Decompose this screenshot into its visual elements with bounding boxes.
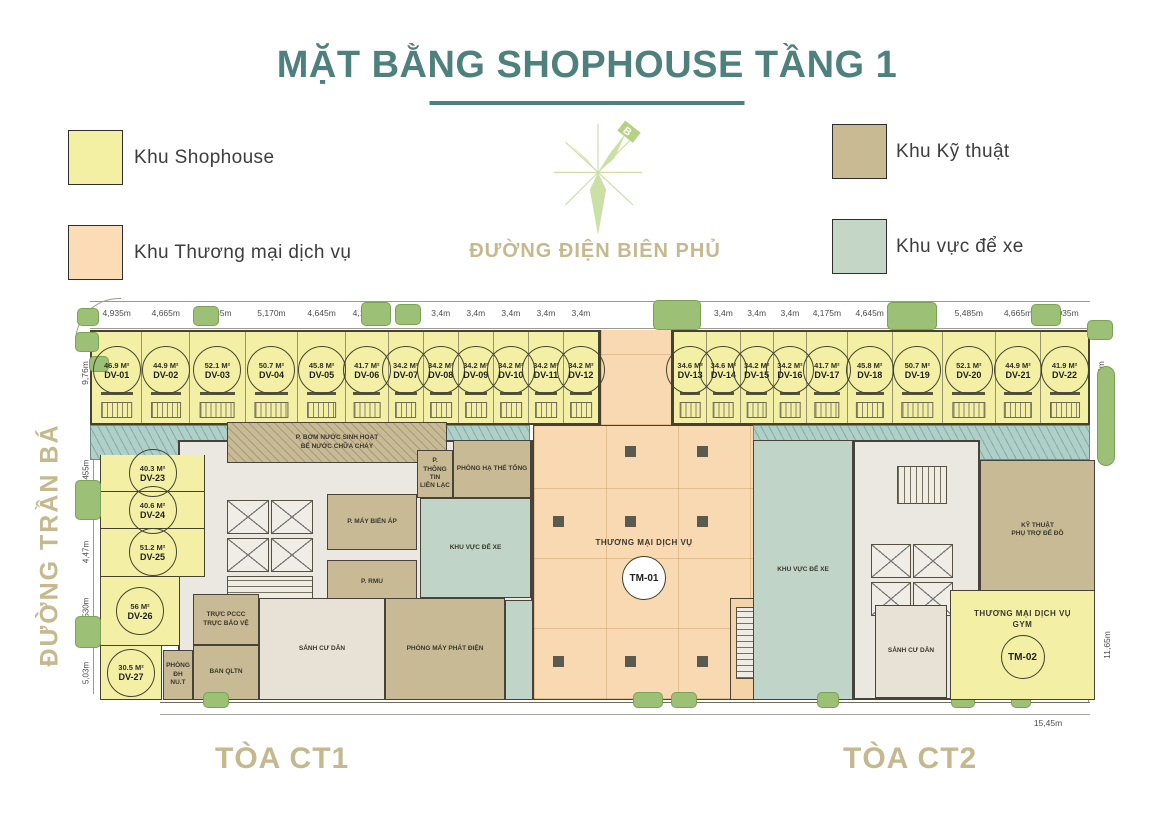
unit-badge: 51.2 M² DV-25 — [129, 528, 177, 576]
unit-dimension: 4,645m — [307, 308, 335, 318]
title-underline — [430, 101, 745, 105]
floor-plan: THƯƠNG MẠI DỊCH VỤ TM-01 4,935m 46.9 M² … — [75, 298, 1111, 714]
shopfront-fixture — [395, 402, 417, 418]
shophouse-unit: 4,175m 41.7 M² DV-06 — [345, 332, 388, 423]
unit-id: DV-25 — [140, 552, 165, 562]
legend-swatch-commercial — [68, 225, 123, 280]
unit-id: DV-11 — [534, 370, 559, 380]
tree — [395, 304, 421, 325]
shopfront-fixture — [780, 402, 801, 418]
shophouse-unit: 5,485m 52.1 M² DV-20 — [942, 332, 995, 423]
unit-id: DV-10 — [498, 370, 523, 380]
shophouse-unit: 3,4m 34.2 M² DV-12 — [563, 332, 598, 423]
elevator — [871, 544, 911, 578]
tower-label-ct2: TÒA CT2 — [843, 742, 977, 776]
shophouse-unit: 4,935m 41.9 M² DV-22 — [1040, 332, 1088, 423]
tree — [671, 692, 697, 708]
zone-tm01-entry — [600, 330, 672, 426]
unit-badge: 52.1 M² DV-03 — [193, 346, 241, 394]
unit-dimension: 3,4m — [571, 308, 590, 318]
room-ky-thuat: KỸ THUẬT PHỤ TRỢ ĐỂ ĐỒ — [980, 460, 1095, 600]
tree — [633, 692, 663, 708]
zone-tm01: THƯƠNG MẠI DỊCH VỤ TM-01 — [533, 425, 755, 700]
shopfront-fixture — [465, 402, 487, 418]
elevator — [913, 544, 953, 578]
unit-dimension: 5,03m — [82, 662, 91, 684]
unit-area: 34.2 M² — [463, 361, 488, 370]
unit-dimension: 4,645m — [856, 308, 884, 318]
unit-badge: 41.9 M² DV-22 — [1041, 346, 1089, 394]
unit-dimension: 3,4m — [431, 308, 450, 318]
unit-area: 41.7 M² — [354, 361, 379, 370]
unit-badge: 45.8 M² DV-05 — [298, 346, 346, 394]
unit-dimension: 4,47m — [82, 541, 91, 563]
unit-area: 34.2 M² — [393, 361, 418, 370]
shopfront-fixture — [1050, 402, 1080, 418]
shophouse-unit: 4,175m 41.7 M² DV-17 — [806, 332, 847, 423]
unit-badge: 41.7 M² DV-17 — [803, 346, 851, 394]
room-parking-ct1: KHU VỰC ĐỂ XE — [420, 498, 531, 598]
unit-area: 34.2 M² — [777, 361, 802, 370]
unit-dimension: 3,4m — [780, 308, 799, 318]
floorplan-page: { "title": "MẶT BẰNG SHOPHOUSE TẦNG 1", … — [0, 0, 1174, 831]
tree — [887, 302, 937, 330]
room-generator: PHÒNG MÁY PHÁT ĐIỆN — [385, 598, 505, 700]
room-parking-ct2: KHU VỰC ĐỂ XE — [753, 440, 853, 700]
elevator — [271, 500, 313, 534]
unit-id: DV-06 — [354, 370, 379, 380]
unit-id: DV-09 — [463, 370, 488, 380]
unit-area: 34.2 M² — [498, 361, 523, 370]
unit-id: DV-16 — [777, 370, 802, 380]
room-ky-thuat-line1: KỸ THUẬT — [1021, 522, 1054, 530]
unit-area: 41.9 M² — [1052, 361, 1077, 370]
corridor-teal-ct1 — [505, 600, 533, 700]
unit-area: 52.1 M² — [956, 361, 981, 370]
unit-id: DV-20 — [956, 370, 981, 380]
shophouse-unit: 3,4m 40.6 M² DV-24 — [100, 492, 205, 529]
elevator — [271, 538, 313, 572]
unit-dimension: 4,665m — [1004, 308, 1032, 318]
unit-dimension: 3,4m — [714, 308, 733, 318]
shophouse-unit: 4,645m 45.8 M² DV-05 — [297, 332, 345, 423]
street-name-left: ĐƯỜNG TRẦN BÁ — [36, 423, 65, 666]
unit-id: DV-18 — [857, 370, 882, 380]
room-thong-tin-line2: LIÊN LẠC — [420, 482, 450, 490]
column-grid — [553, 516, 564, 527]
unit-id: DV-22 — [1052, 370, 1077, 380]
shopfront-fixture — [856, 402, 884, 418]
shopfront-fixture — [902, 402, 933, 418]
unit-area: 45.8 M² — [309, 361, 334, 370]
shopfront-fixture — [307, 402, 337, 418]
room-pump: P. BƠM NƯỚC SINH HOẠT BỂ NƯỚC CHỮA CHÁY — [227, 422, 447, 463]
unit-dimension: 4,665m — [152, 308, 180, 318]
dim-bottom-right: 15,45m — [1003, 718, 1093, 728]
unit-id: DV-07 — [393, 370, 418, 380]
compass-icon: B — [540, 116, 656, 238]
shopfront-fixture — [500, 402, 522, 418]
tree — [75, 332, 99, 352]
room-thong-tin: P. THÔNG TIN LIÊN LẠC — [417, 450, 453, 498]
shopfront-fixture — [952, 402, 985, 418]
unit-dimension: 4,175m — [813, 308, 841, 318]
tm02-badge: TM-02 — [1001, 635, 1045, 679]
unit-area: 34.2 M² — [533, 361, 558, 370]
legend-swatch-technical — [832, 124, 887, 179]
room-ha-the: PHÒNG HẠ THẾ TỔNG — [453, 440, 531, 498]
unit-area: 52.1 M² — [205, 361, 230, 370]
shophouse-column-left: 3,455m 40.3 M² DV-23 3,4m 40.6 M² DV-24 … — [100, 455, 205, 700]
shophouse-unit: 4,935m 46.9 M² DV-01 — [92, 332, 141, 423]
shophouse-unit: 4,665m 44.9 M² DV-21 — [995, 332, 1040, 423]
shophouse-unit: 4,645m 45.8 M² DV-18 — [847, 332, 892, 423]
unit-dimension: 3,4m — [466, 308, 485, 318]
tree — [77, 308, 99, 326]
legend-swatch-parking — [832, 219, 887, 274]
unit-dimension: 5,170m — [257, 308, 285, 318]
unit-badge: 50.7 M² DV-19 — [893, 346, 941, 394]
unit-area: 50.7 M² — [905, 361, 930, 370]
unit-badge: 45.8 M² DV-18 — [846, 346, 894, 394]
unit-dimension: 3,4m — [747, 308, 766, 318]
room-lobby-ct1: SẢNH CƯ DÂN — [259, 598, 385, 700]
shophouse-unit: 3,4m 34.2 M² DV-16 — [773, 332, 806, 423]
page-title: MẶT BẰNG SHOPHOUSE TẦNG 1 — [0, 44, 1174, 87]
shopfront-fixture — [570, 402, 592, 418]
tree — [361, 302, 391, 326]
unit-area: 41.7 M² — [814, 361, 839, 370]
tree — [75, 616, 101, 648]
unit-id: DV-19 — [905, 370, 930, 380]
unit-id: DV-02 — [153, 370, 178, 380]
unit-dimension: 3,4m — [536, 308, 555, 318]
shopfront-fixture — [814, 402, 839, 418]
unit-area: 34.2 M² — [568, 361, 593, 370]
unit-id: DV-12 — [568, 370, 593, 380]
tree — [653, 300, 701, 330]
street-name-top: ĐƯỜNG ĐIỆN BIÊN PHỦ — [445, 240, 745, 263]
unit-id: DV-21 — [1005, 370, 1030, 380]
shophouse-unit: 5,03m 30.5 M² DV-27 — [100, 646, 162, 700]
room-pump-line2: BỂ NƯỚC CHỮA CHÁY — [301, 443, 373, 451]
unit-id: DV-03 — [205, 370, 230, 380]
unit-dimension: 4,935m — [103, 308, 131, 318]
shopfront-fixture — [353, 402, 380, 418]
shophouse-unit: 6,530m 56 M² DV-26 — [100, 577, 180, 646]
unit-id: DV-26 — [127, 611, 152, 621]
unit-badge: 30.5 M² DV-27 — [107, 649, 155, 697]
unit-badge: 52.1 M² DV-20 — [945, 346, 993, 394]
unit-id: DV-24 — [140, 510, 165, 520]
tree — [817, 692, 839, 708]
shopfront-fixture — [535, 402, 557, 418]
tree — [1031, 304, 1061, 326]
legend-label-commercial: Khu Thương mại dịch vụ — [134, 242, 351, 264]
shophouse-unit: 5,435m 52.1 M² DV-03 — [189, 332, 244, 423]
unit-badge: 46.9 M² DV-01 — [93, 346, 141, 394]
tree — [193, 306, 219, 326]
room-ky-thuat-line2: PHỤ TRỢ ĐỂ ĐỒ — [1011, 530, 1063, 538]
shophouse-row-left: 4,935m 46.9 M² DV-01 4,665m 44.9 M² DV-0… — [90, 330, 600, 425]
unit-area: 40.6 M² — [140, 501, 165, 510]
shopfront-fixture — [680, 402, 701, 418]
unit-badge: 56 M² DV-26 — [116, 587, 164, 635]
shophouse-unit: 5,170m 50.7 M² DV-04 — [245, 332, 298, 423]
tree — [203, 692, 229, 708]
unit-badge: 50.7 M² DV-04 — [247, 346, 295, 394]
elevator — [227, 538, 269, 572]
tm01-badge: TM-01 — [622, 556, 666, 600]
unit-id: DV-08 — [428, 370, 453, 380]
unit-area: 40.3 M² — [140, 464, 165, 473]
tree — [1087, 320, 1113, 340]
unit-area: 44.9 M² — [153, 361, 178, 370]
elevator — [227, 500, 269, 534]
room-bien-ap: P. MÁY BIẾN ÁP — [327, 494, 417, 550]
unit-badge: 44.9 M² DV-02 — [142, 346, 190, 394]
unit-badge: 40.6 M² DV-24 — [129, 486, 177, 534]
shopfront-fixture — [151, 402, 181, 418]
legend-swatch-shophouse — [68, 130, 123, 185]
room-pccc-line2: TRỰC BẢO VỆ — [203, 620, 248, 628]
shopfront-fixture — [200, 402, 235, 418]
unit-area: 51.2 M² — [140, 543, 165, 552]
unit-id: DV-05 — [309, 370, 334, 380]
shophouse-unit: 4,47m 51.2 M² DV-25 — [100, 529, 205, 577]
shopfront-fixture — [746, 402, 767, 418]
shopfront-fixture — [713, 402, 734, 418]
shopfront-fixture — [101, 402, 133, 418]
unit-area: 45.8 M² — [857, 361, 882, 370]
shopfront-fixture — [1004, 402, 1032, 418]
legend-label-shophouse: Khu Shophouse — [134, 147, 274, 169]
legend-label-technical: Khu Kỹ thuật — [896, 141, 1010, 163]
unit-id: DV-04 — [259, 370, 284, 380]
shophouse-unit: 4,665m 44.9 M² DV-02 — [141, 332, 189, 423]
shopfront-fixture — [255, 402, 288, 418]
shophouse-unit: 5,170m 50.7 M² DV-19 — [892, 332, 942, 423]
unit-area: 34.2 M² — [428, 361, 453, 370]
tm02-label: THƯƠNG MẠI DỊCH VỤ — [951, 609, 1094, 619]
zone-tm02: THƯƠNG MẠI DỊCH VỤ GYM TM-02 — [950, 590, 1095, 700]
unit-id: DV-23 — [140, 473, 165, 483]
unit-area: 44.9 M² — [1005, 361, 1030, 370]
unit-id: DV-01 — [104, 370, 129, 380]
room-pump-line1: P. BƠM NƯỚC SINH HOẠT — [296, 434, 378, 442]
shophouse-row-right: 3,4m 34.6 M² DV-13 3,4m 34.6 M² DV-14 3,… — [672, 330, 1090, 425]
tree-strip — [1097, 366, 1115, 466]
dim-right-bottom: 11,65m — [1102, 631, 1112, 659]
unit-area: 30.5 M² — [118, 663, 143, 672]
tree — [75, 480, 101, 520]
room-lobby-ct2: SẢNH CƯ DÂN — [875, 605, 947, 698]
room-pccc-line1: TRỰC PCCC — [207, 611, 246, 619]
tm01-label: THƯƠNG MẠI DỊCH VỤ — [534, 538, 754, 547]
room-thong-tin-line1: P. THÔNG TIN — [420, 457, 450, 482]
legend-label-parking: Khu vực để xe — [896, 236, 1024, 258]
unit-dimension: 3,4m — [501, 308, 520, 318]
unit-dimension: 5,485m — [955, 308, 983, 318]
tower-label-ct1: TÒA CT1 — [215, 742, 349, 776]
unit-badge: 34.2 M² DV-12 — [557, 346, 605, 394]
shopfront-fixture — [430, 402, 452, 418]
unit-area: 50.7 M² — [259, 361, 284, 370]
tm02-sublabel: GYM — [951, 620, 1094, 630]
unit-area: 56 M² — [130, 602, 149, 611]
unit-area: 46.9 M² — [104, 361, 129, 370]
stairwell — [897, 466, 947, 504]
unit-badge: 44.9 M² DV-21 — [994, 346, 1042, 394]
unit-id: DV-27 — [118, 672, 143, 682]
unit-id: DV-17 — [814, 370, 839, 380]
